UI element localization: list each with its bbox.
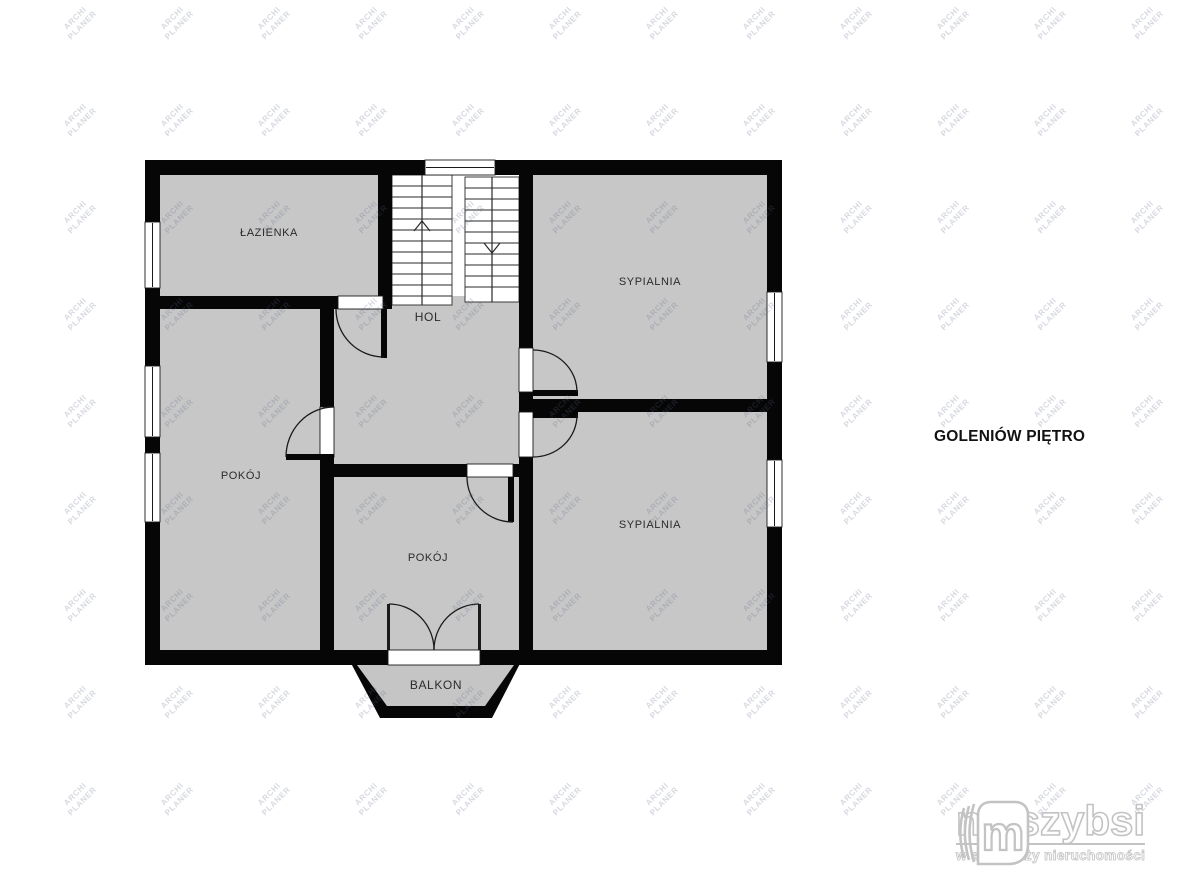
door-opening-roomleft	[320, 407, 334, 457]
door-opening-roommiddle	[467, 464, 513, 477]
room-label-hall: HOL	[415, 310, 441, 324]
m-monogram-icon: m	[956, 798, 1034, 868]
room-floors	[160, 175, 767, 650]
door-leaf-roommiddle	[508, 477, 514, 522]
door-opening-bedroom-top	[519, 348, 533, 392]
room-bedroom-bottom	[533, 412, 767, 650]
wall-right	[767, 160, 782, 665]
logo: m najszybsi w sprzedaży nieruchomości	[956, 798, 1200, 874]
floorplan-canvas: ŁAZIENKA HOL SYPIALNIA SYPIALNIA POKÓJ P…	[0, 0, 1200, 878]
room-label-room-left: POKÓJ	[221, 469, 261, 482]
room-label-room-middle: POKÓJ	[408, 551, 448, 564]
door-leaf-bathroom	[381, 309, 387, 358]
room-label-balcony: BALKON	[410, 678, 462, 692]
wall-bedroom-divider	[519, 399, 767, 412]
room-label-bathroom: ŁAZIENKA	[240, 227, 298, 239]
door-leaf-bedroom-top	[533, 390, 578, 396]
door-opening-balcony	[388, 650, 480, 665]
door-leaf-bedroom-bottom	[533, 412, 578, 418]
plan-title: GOLENIÓW PIĘTRO	[934, 428, 1085, 446]
door-leaf-balcony-left	[387, 604, 390, 650]
staircase	[392, 175, 519, 305]
room-label-bedroom-top: SYPIALNIA	[619, 276, 681, 288]
door-leaf-balcony-right	[478, 604, 481, 650]
door-opening-bedroom-bottom	[519, 412, 533, 457]
room-label-bedroom-bottom: SYPIALNIA	[619, 519, 681, 531]
wall-bathroom-stairs	[378, 175, 392, 308]
door-leaf-roomleft	[286, 454, 334, 460]
svg-text:m: m	[982, 808, 1025, 861]
door-opening-bathroom	[338, 296, 383, 309]
